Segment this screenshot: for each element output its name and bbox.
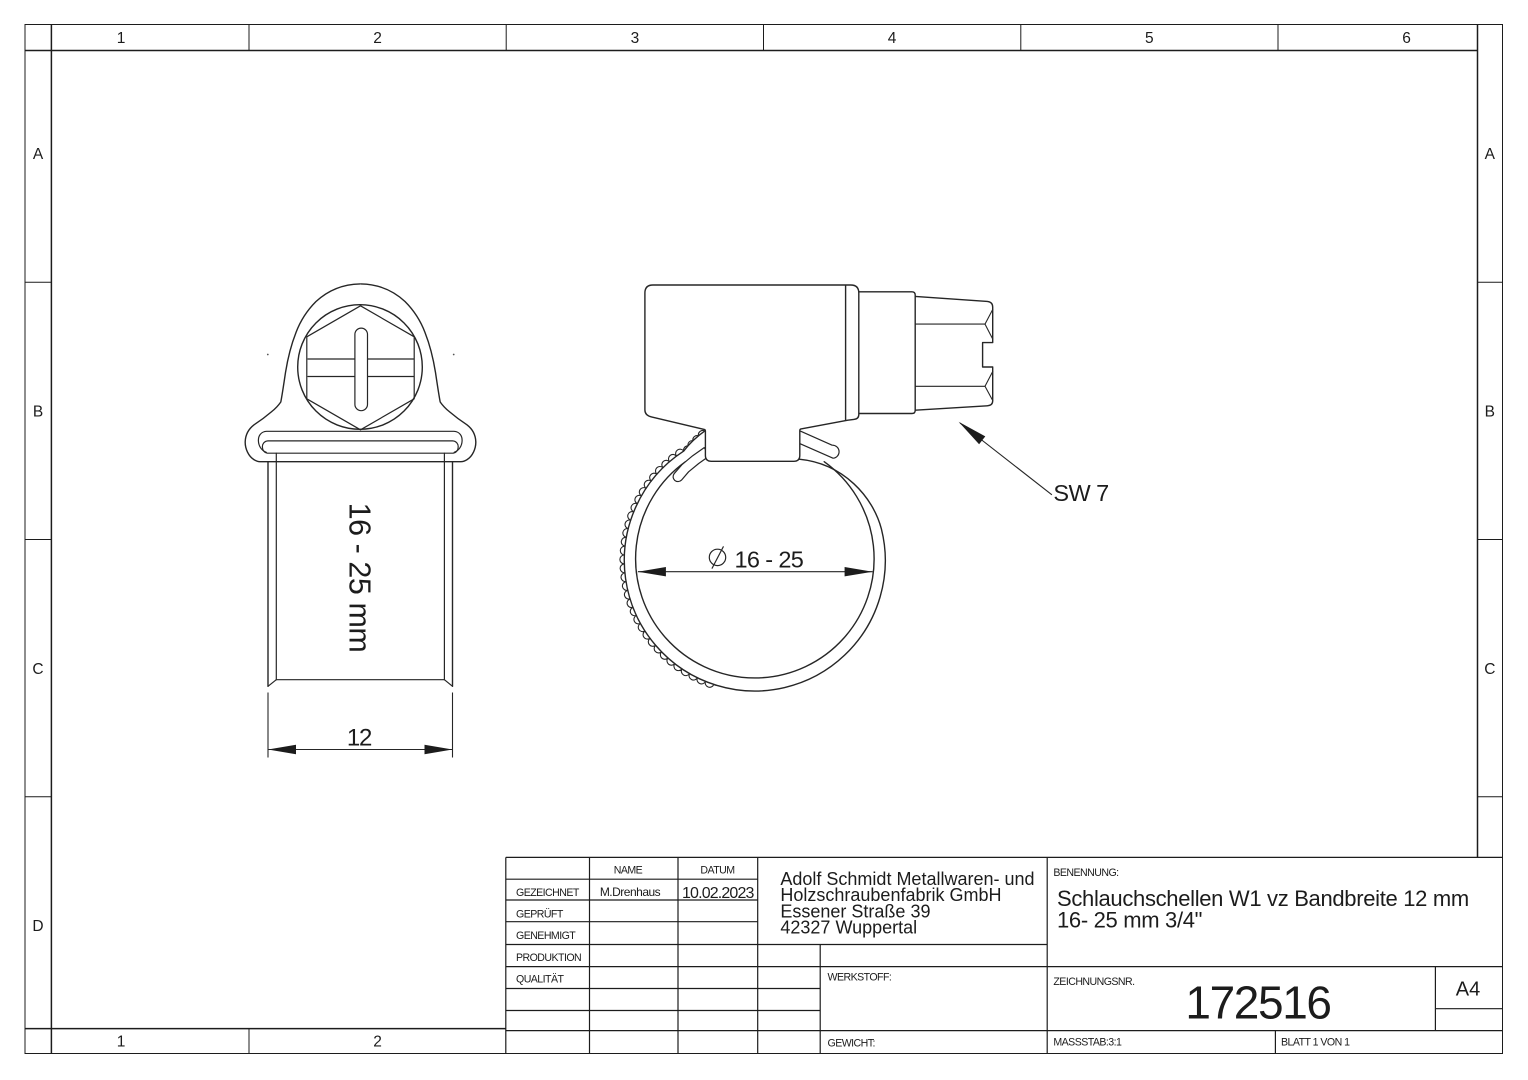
svg-text:DATUM: DATUM xyxy=(700,865,734,877)
svg-text:A: A xyxy=(33,146,44,163)
svg-text:WERKSTOFF:: WERKSTOFF: xyxy=(828,972,892,984)
svg-text:A: A xyxy=(1485,146,1496,163)
svg-text:GEPRÜFT: GEPRÜFT xyxy=(516,909,564,921)
svg-text:GENEHMIGT: GENEHMIGT xyxy=(516,930,576,942)
svg-text:6: 6 xyxy=(1402,30,1411,47)
svg-text:1: 1 xyxy=(117,1034,126,1051)
svg-text:A4: A4 xyxy=(1456,979,1480,1001)
svg-text:2: 2 xyxy=(373,30,382,47)
svg-text:3: 3 xyxy=(631,30,640,47)
svg-text:C: C xyxy=(1484,661,1495,678)
svg-text:BLATT 1 VON 1: BLATT 1 VON 1 xyxy=(1281,1037,1350,1049)
svg-text:D: D xyxy=(32,918,43,935)
svg-text:GEWICHT:: GEWICHT: xyxy=(828,1038,875,1050)
svg-text:1: 1 xyxy=(117,30,126,47)
svg-text:PRODUKTION: PRODUKTION xyxy=(516,952,581,964)
svg-text:5: 5 xyxy=(1145,30,1154,47)
svg-text:42327 Wuppertal: 42327 Wuppertal xyxy=(780,918,917,938)
svg-text:16- 25 mm 3/4": 16- 25 mm 3/4" xyxy=(1057,908,1202,933)
svg-text:SW 7: SW 7 xyxy=(1053,480,1108,506)
svg-text:QUALITÄT: QUALITÄT xyxy=(516,974,564,986)
svg-text:BENENNUNG:: BENENNUNG: xyxy=(1053,867,1118,879)
svg-text:NAME: NAME xyxy=(614,865,643,877)
svg-text:10.02.2023: 10.02.2023 xyxy=(682,885,755,902)
svg-text:B: B xyxy=(1485,404,1495,421)
svg-text:172516: 172516 xyxy=(1185,977,1330,1029)
svg-text:ZEICHNUNGSNR.: ZEICHNUNGSNR. xyxy=(1053,976,1134,988)
svg-text:16 - 25 mm: 16 - 25 mm xyxy=(343,503,377,653)
svg-text:12: 12 xyxy=(347,725,372,752)
svg-text:C: C xyxy=(32,661,43,678)
svg-text:M.Drenhaus: M.Drenhaus xyxy=(600,885,661,899)
svg-text:4: 4 xyxy=(888,30,897,47)
svg-text:16 - 25: 16 - 25 xyxy=(735,547,804,573)
svg-text:GEZEICHNET: GEZEICHNET xyxy=(516,887,580,899)
svg-text:MASSSTAB:3:1: MASSSTAB:3:1 xyxy=(1053,1037,1122,1049)
svg-text:2: 2 xyxy=(373,1034,382,1051)
svg-text:B: B xyxy=(33,404,43,421)
